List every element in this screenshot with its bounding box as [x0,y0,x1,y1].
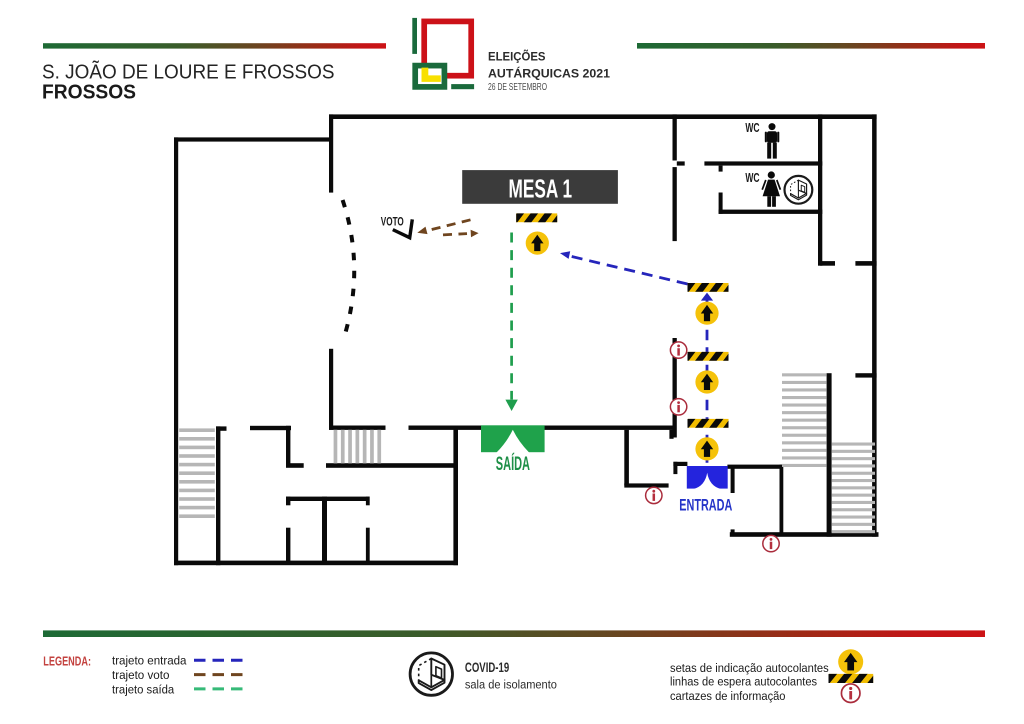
svg-text:sala de isolamento: sala de isolamento [465,677,557,691]
svg-text:trajeto entrada: trajeto entrada [112,654,187,668]
svg-text:trajeto voto: trajeto voto [112,668,170,682]
svg-text:COVID-19: COVID-19 [465,659,509,675]
svg-text:LEGENDA:: LEGENDA: [43,653,91,668]
svg-text:cartazes de informação: cartazes de informação [670,689,786,703]
svg-text:setas de indicação autocolante: setas de indicação autocolantes [670,661,829,675]
svg-text:26 DE SETEMBRO: 26 DE SETEMBRO [488,82,547,93]
svg-text:WC: WC [745,170,759,185]
svg-text:VOTO: VOTO [381,216,404,229]
svg-text:MESA 1: MESA 1 [509,175,573,203]
svg-text:ENTRADA: ENTRADA [679,496,732,515]
svg-text:ELEIÇÕES: ELEIÇÕES [488,48,546,63]
svg-text:WC: WC [745,120,759,135]
svg-text:AUTÁRQUICAS 2021: AUTÁRQUICAS 2021 [488,66,610,81]
svg-text:linhas de espera autocolantes: linhas de espera autocolantes [670,674,817,688]
svg-text:S. JOÃO DE LOURE E FROSSOS: S. JOÃO DE LOURE E FROSSOS [42,60,335,84]
svg-text:FROSSOS: FROSSOS [42,81,136,103]
svg-text:SAÍDA: SAÍDA [496,453,530,475]
svg-text:trajeto saída: trajeto saída [112,682,174,696]
